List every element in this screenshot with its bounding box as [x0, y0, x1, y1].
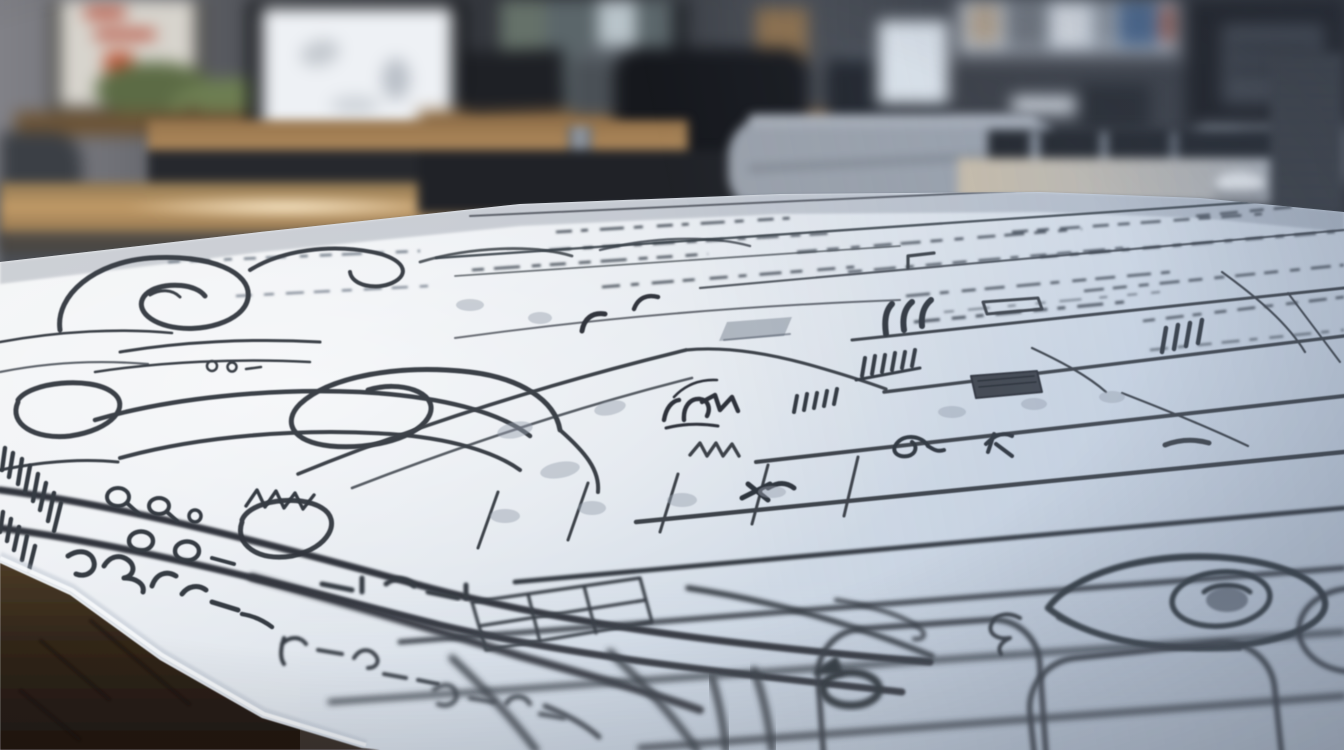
- eye-pupil: [1206, 588, 1248, 612]
- smudge: [758, 486, 786, 498]
- smudge: [667, 493, 697, 507]
- smudge: [490, 509, 520, 523]
- paper-sheet: [0, 0, 1344, 750]
- smudge: [528, 312, 552, 324]
- smudge: [1099, 391, 1125, 403]
- smudge: [938, 406, 966, 418]
- smudge: [456, 299, 484, 311]
- smudge: [1021, 398, 1047, 410]
- photo-canvas: [0, 0, 1344, 750]
- smudge: [578, 501, 606, 515]
